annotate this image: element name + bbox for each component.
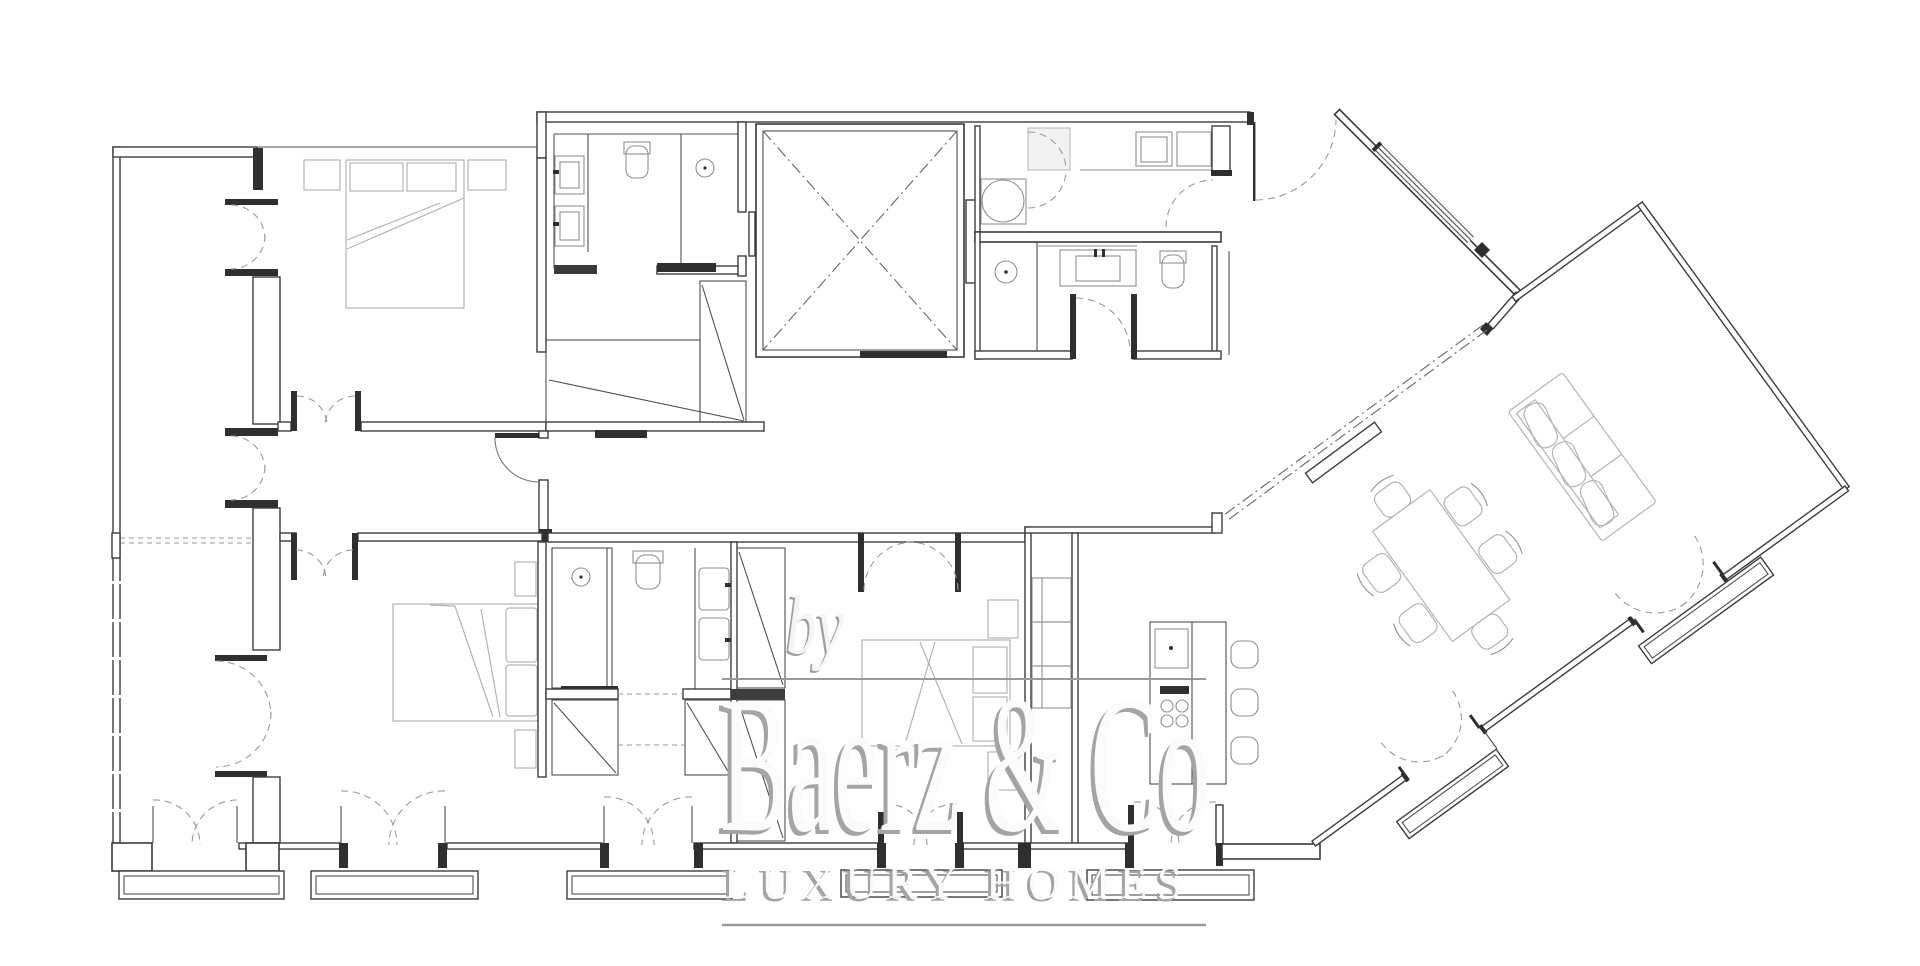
svg-text:Baerz & Co: Baerz & Co xyxy=(720,656,1210,873)
svg-text:LUXURY HOMES: LUXURY HOMES xyxy=(724,858,1202,908)
